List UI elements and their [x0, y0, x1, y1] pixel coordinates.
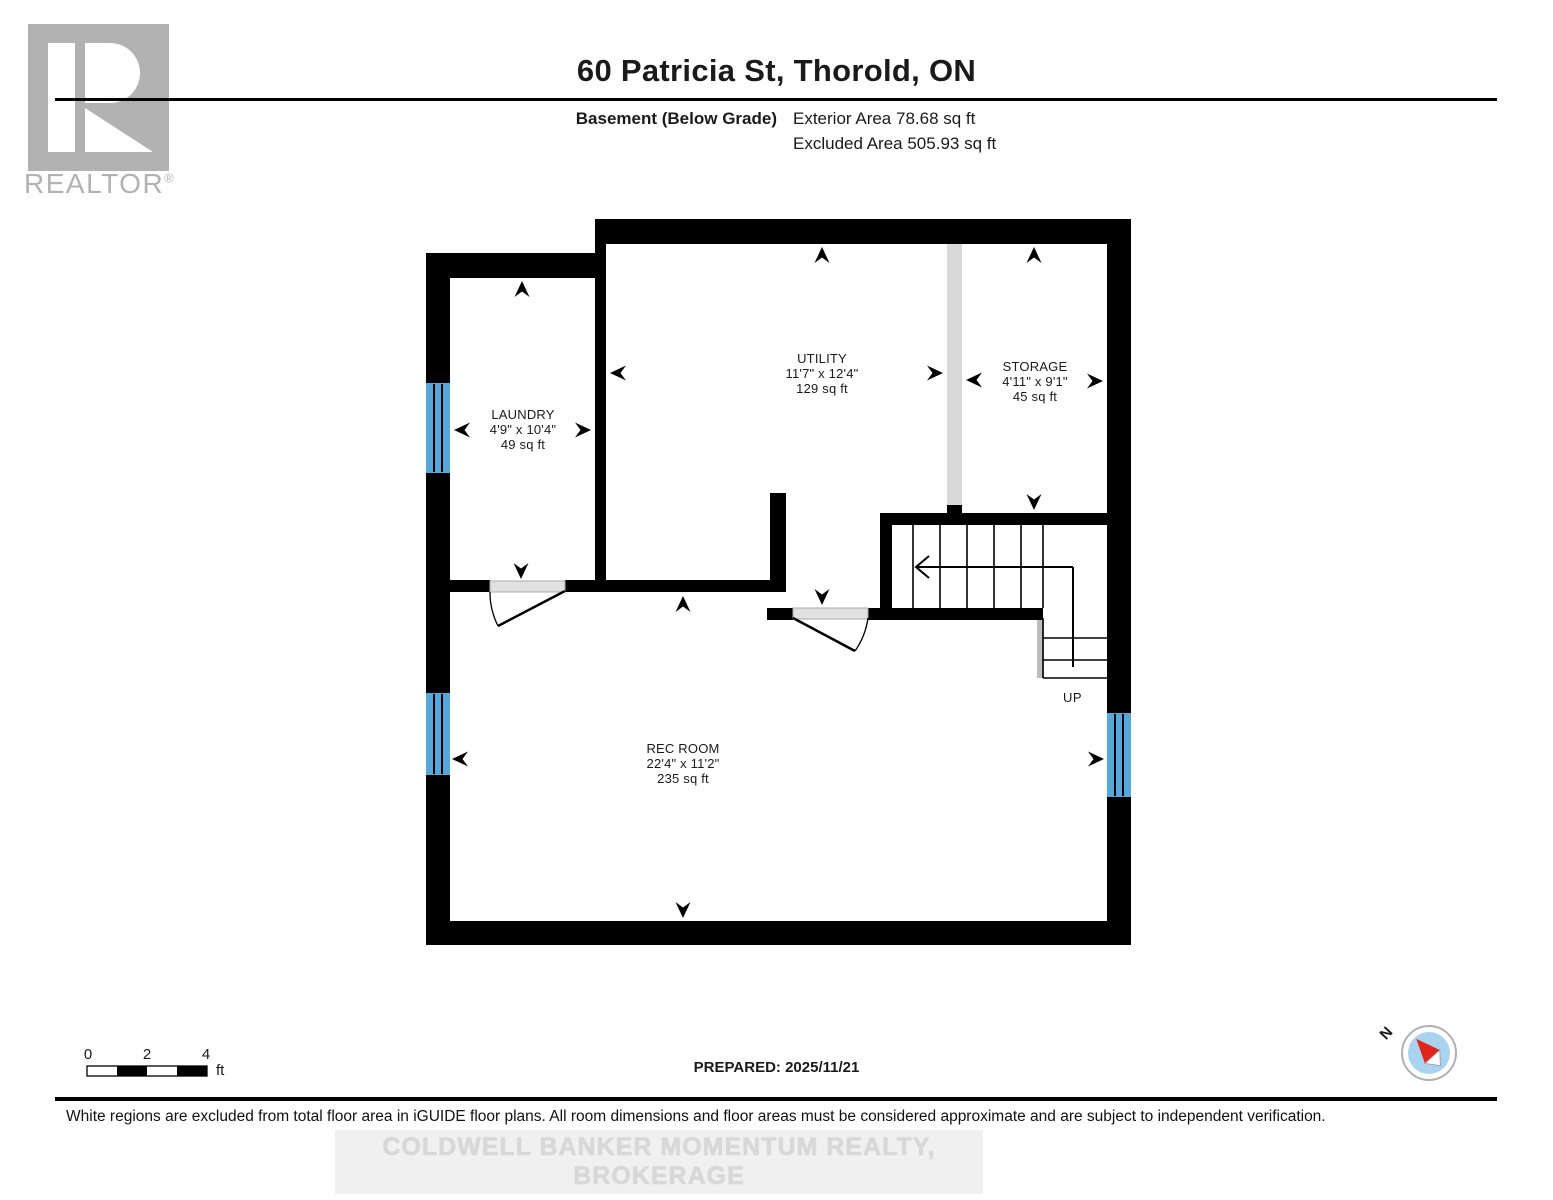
- registered-mark: ®: [164, 171, 175, 186]
- room-dimensions: 4'11" x 9'1": [1002, 374, 1068, 389]
- window-left-lower: [426, 693, 450, 775]
- chimney: [947, 244, 962, 514]
- room-label-rec-room: REC ROOM 22'4" x 11'2" 235 sq ft: [646, 741, 719, 786]
- window-right: [1107, 713, 1131, 797]
- page-title: 60 Patricia St, Thorold, ON: [0, 53, 1553, 89]
- realtor-logo-label: REALTOR®: [24, 168, 175, 200]
- room-dimensions: 11'7" x 12'4": [786, 366, 859, 381]
- footer-divider-line: [55, 1097, 1497, 1101]
- realtor-logo-text: REALTOR: [24, 168, 164, 199]
- room-area: 45 sq ft: [1002, 389, 1068, 404]
- room-area: 49 sq ft: [490, 437, 556, 452]
- door-rec-room: [793, 608, 868, 651]
- room-label-storage: STORAGE 4'11" x 9'1" 45 sq ft: [1002, 359, 1068, 404]
- realtor-logo: [28, 24, 169, 171]
- header-divider-line: [55, 98, 1497, 101]
- room-name: REC ROOM: [646, 741, 719, 756]
- floor-level-label: Basement (Below Grade): [576, 109, 777, 129]
- room-dimensions: 22'4" x 11'2": [646, 756, 719, 771]
- floor-plan-drawing: [0, 0, 1553, 1200]
- stairs-up-label: UP: [1063, 690, 1082, 705]
- room-name: LAUNDRY: [490, 407, 556, 422]
- window-left-upper: [426, 383, 450, 473]
- room-name: STORAGE: [1002, 359, 1068, 374]
- staircase: [913, 525, 1107, 678]
- prepared-date-label: PREPARED: 2025/11/21: [0, 1059, 1553, 1076]
- room-area: 129 sq ft: [786, 381, 859, 396]
- exterior-area-value: Exterior Area 78.68 sq ft: [793, 109, 975, 129]
- room-name: UTILITY: [786, 351, 859, 366]
- floor-plan-page: REALTOR® 60 Patricia St, Thorold, ON Bas…: [0, 0, 1553, 1200]
- brokerage-watermark: COLDWELL BANKER MOMENTUM REALTY, BROKERA…: [335, 1130, 983, 1194]
- door-laundry: [490, 581, 565, 626]
- room-dimensions: 4'9" x 10'4": [490, 422, 556, 437]
- room-area: 235 sq ft: [646, 771, 719, 786]
- room-label-laundry: LAUNDRY 4'9" x 10'4" 49 sq ft: [490, 407, 556, 452]
- excluded-area-value: Excluded Area 505.93 sq ft: [793, 134, 996, 154]
- room-label-utility: UTILITY 11'7" x 12'4" 129 sq ft: [786, 351, 859, 396]
- disclaimer-text: White regions are excluded from total fl…: [66, 1108, 1326, 1126]
